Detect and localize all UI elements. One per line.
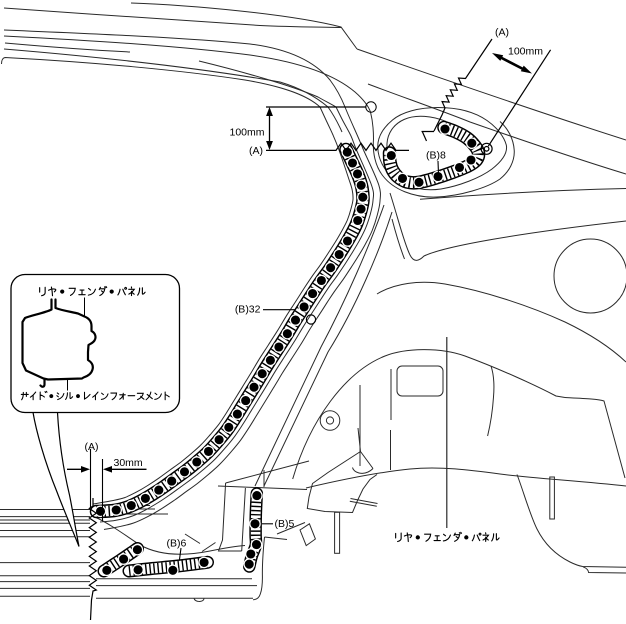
svg-text:(B)32: (B)32 bbox=[235, 304, 261, 316]
svg-text:(A): (A) bbox=[495, 27, 509, 39]
svg-text:30mm: 30mm bbox=[114, 457, 143, 469]
svg-text:(A): (A) bbox=[85, 441, 99, 453]
svg-text:100mm: 100mm bbox=[508, 46, 543, 58]
svg-text:100mm: 100mm bbox=[229, 127, 264, 139]
svg-text:(A): (A) bbox=[249, 145, 263, 157]
svg-text:(B)5: (B)5 bbox=[275, 518, 295, 530]
svg-text:(B)8: (B)8 bbox=[426, 150, 446, 162]
svg-text:(B)6: (B)6 bbox=[167, 538, 187, 550]
